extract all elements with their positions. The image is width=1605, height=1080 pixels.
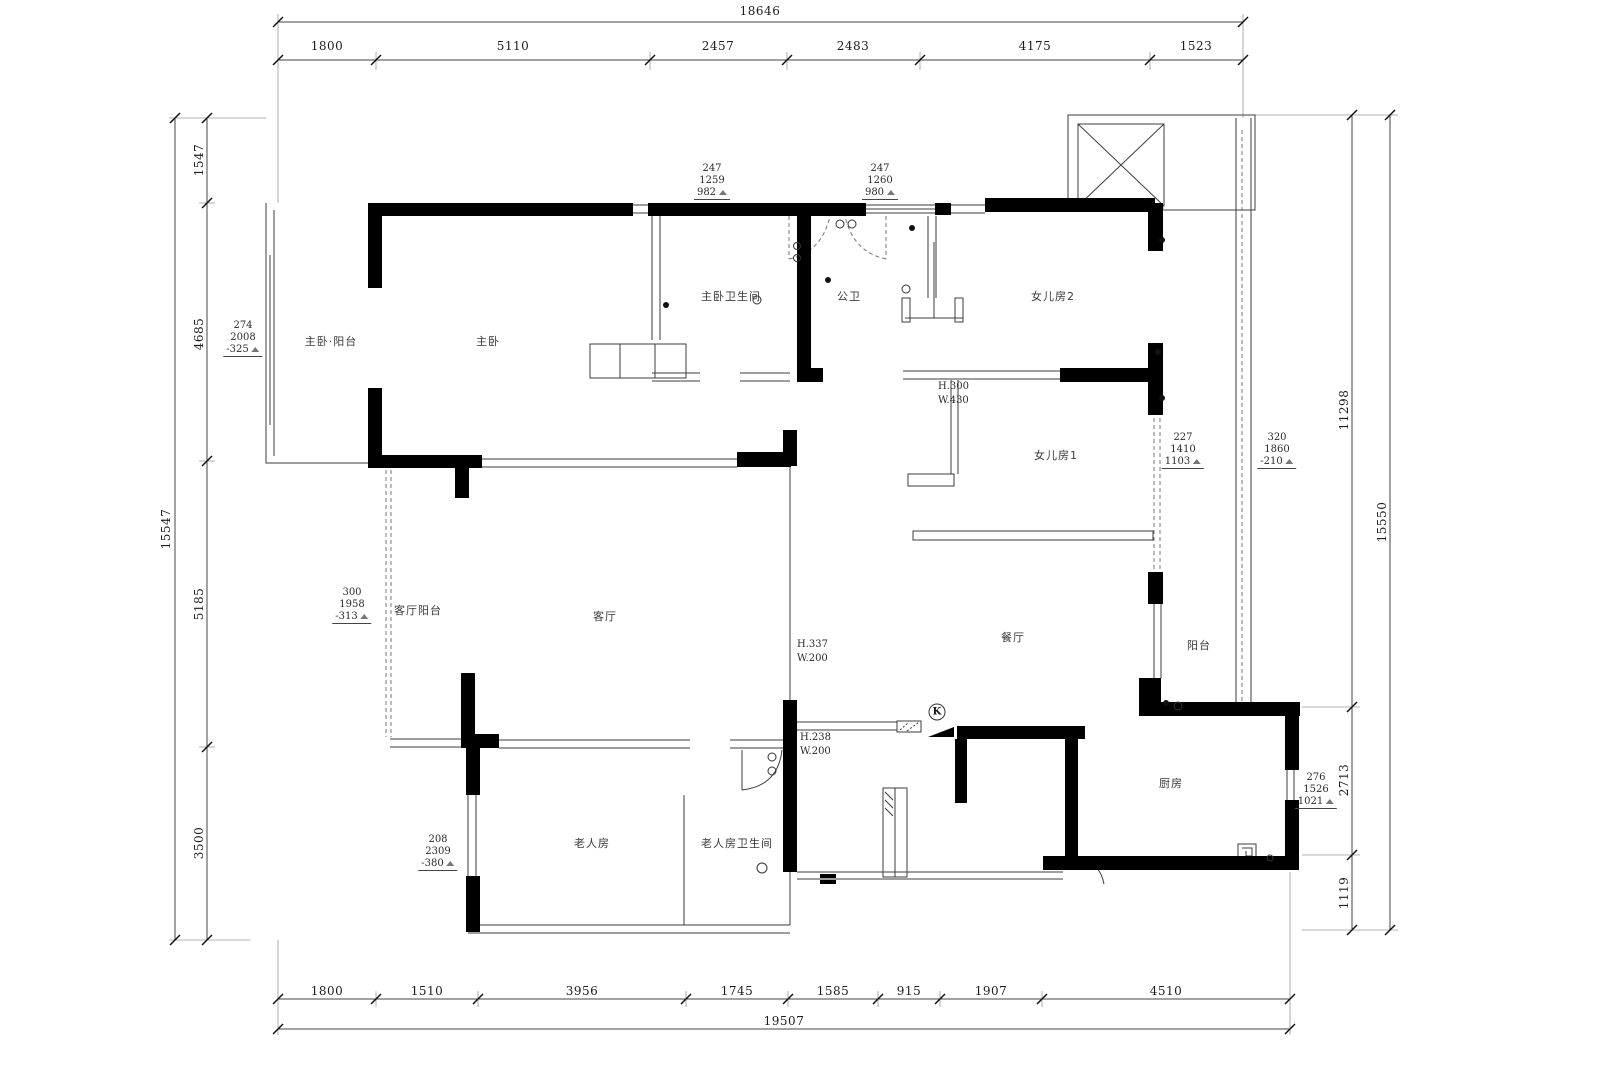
extension-lines bbox=[169, 14, 1398, 1035]
dimension-lines bbox=[175, 22, 1390, 1029]
dim-left-seg-2: 5185 bbox=[192, 588, 206, 621]
dim-bottom-seg-6: 1907 bbox=[975, 984, 1008, 998]
window-mark-elderly-room: 208 2309 -380 bbox=[418, 834, 457, 871]
opening-living-sill: H.337 W.200 bbox=[797, 638, 828, 666]
opening-daughter-sill: H.300 W.430 bbox=[938, 380, 969, 408]
dim-top-seg-5: 1523 bbox=[1180, 39, 1213, 53]
sill-triangle-icon bbox=[1286, 459, 1294, 464]
sill-triangle-icon bbox=[361, 614, 369, 619]
dim-bottom-seg-2: 3956 bbox=[566, 984, 599, 998]
window-mark-east-balcony: 320 1860 -210 bbox=[1257, 432, 1296, 469]
room-label-master-balcony: 主卧·阳台 bbox=[305, 333, 358, 349]
sill-triangle-icon bbox=[1326, 799, 1334, 804]
opening-entry-sill: H.238 W.200 bbox=[800, 731, 831, 759]
room-label-daughter-room-1: 女儿房1 bbox=[1034, 447, 1078, 463]
dim-top-seg-1: 5110 bbox=[497, 39, 530, 53]
dim-right-total: 15550 bbox=[1375, 502, 1389, 543]
sill-triangle-icon bbox=[1193, 459, 1201, 464]
sill-triangle-icon bbox=[252, 347, 260, 352]
dim-top-seg-3: 2483 bbox=[837, 39, 870, 53]
dim-bottom-seg-5: 915 bbox=[897, 984, 921, 998]
room-label-elderly-room: 老人房 bbox=[574, 835, 610, 851]
dim-bottom-seg-3: 1745 bbox=[721, 984, 754, 998]
kitchen-k-symbol: K bbox=[929, 704, 946, 721]
dim-right-seg-1: 2713 bbox=[1337, 764, 1351, 797]
dim-bottom-seg-7: 4510 bbox=[1150, 984, 1183, 998]
room-label-dining-room: 餐厅 bbox=[1001, 629, 1025, 645]
dim-top-seg-0: 1800 bbox=[311, 39, 344, 53]
dim-left-seg-1: 4685 bbox=[192, 318, 206, 351]
dim-top-seg-4: 4175 bbox=[1019, 39, 1052, 53]
room-label-master-bathroom: 主卧卫生间 bbox=[701, 288, 761, 304]
dim-left-total: 15547 bbox=[159, 509, 173, 550]
dim-bottom-total: 19507 bbox=[764, 1014, 805, 1028]
dim-right-seg-0: 11298 bbox=[1337, 390, 1351, 431]
room-label-balcony: 阳台 bbox=[1187, 637, 1211, 653]
dim-left-seg-0: 1547 bbox=[192, 144, 206, 177]
window-mark-living-balcony: 300 1958 -313 bbox=[332, 587, 371, 624]
window-mark-daughter-room-1: 227 1410 1103 bbox=[1162, 432, 1204, 469]
sill-triangle-icon bbox=[719, 190, 727, 195]
dim-top-total: 18646 bbox=[740, 4, 781, 18]
window-mark-kitchen: 276 1526 1021 bbox=[1295, 772, 1337, 809]
sill-triangle-icon bbox=[447, 861, 455, 866]
dim-bottom-seg-0: 1800 bbox=[311, 984, 344, 998]
dim-top-seg-2: 2457 bbox=[702, 39, 735, 53]
room-label-living-balcony: 客厅阳台 bbox=[394, 602, 442, 618]
sill-triangle-icon bbox=[887, 190, 895, 195]
floorplan-canvas bbox=[0, 0, 1605, 1080]
floorplan-drawing: 18646 1800 5110 2457 2483 4175 1523 1800… bbox=[0, 0, 1605, 1080]
thin-walls-and-windows bbox=[266, 115, 1294, 933]
dimension-ticks bbox=[170, 17, 1395, 1034]
room-label-elderly-bathroom: 老人房卫生间 bbox=[701, 835, 773, 851]
room-label-kitchen: 厨房 bbox=[1159, 775, 1183, 791]
dim-left-seg-3: 3500 bbox=[192, 827, 206, 860]
room-label-daughter-room-2: 女儿房2 bbox=[1031, 288, 1075, 304]
room-label-master-bedroom: 主卧 bbox=[476, 333, 500, 349]
dim-bottom-seg-1: 1510 bbox=[411, 984, 444, 998]
window-mark-master-balcony: 274 2008 -325 bbox=[223, 320, 262, 357]
dim-right-seg-2: 1119 bbox=[1337, 877, 1351, 910]
room-label-living-room: 客厅 bbox=[593, 608, 617, 624]
window-mark-top-left: 247 1259 982 bbox=[694, 163, 730, 200]
room-label-public-bathroom: 公卫 bbox=[837, 288, 861, 304]
dim-bottom-seg-4: 1585 bbox=[817, 984, 850, 998]
window-mark-top-right: 247 1260 980 bbox=[862, 163, 898, 200]
